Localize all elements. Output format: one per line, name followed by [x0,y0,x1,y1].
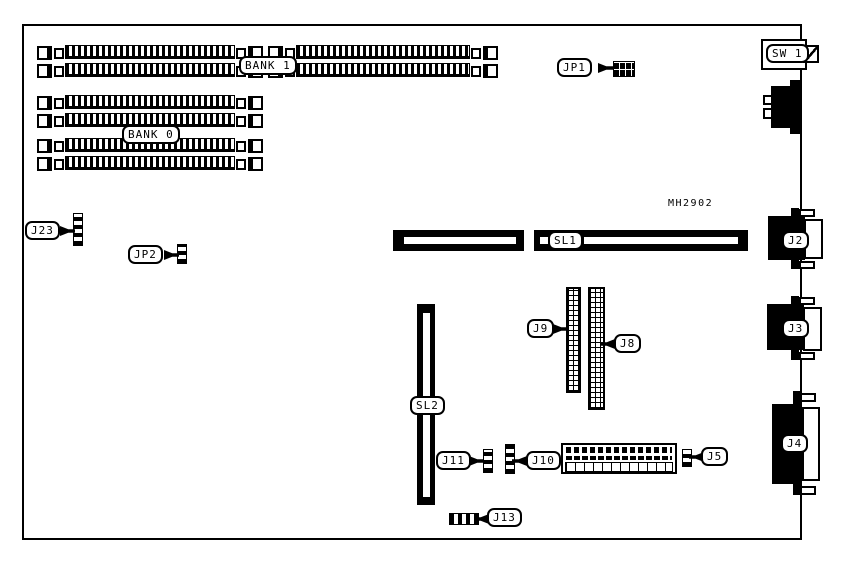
socket-pins [65,63,235,77]
j4-label: J4 [781,434,808,453]
j3-screw-post [791,350,799,360]
socket-end-right [248,139,263,153]
socket-end-left [37,114,52,128]
memory-socket [37,63,263,80]
j10-pin-header [505,444,515,474]
expansion-slot [393,230,524,251]
socket-pins [65,156,235,170]
j2-screw-tab [799,261,815,269]
socket-end-right [248,96,263,110]
memory-socket [37,95,263,112]
socket-bracket [54,98,64,109]
j11-label: J11 [436,451,471,470]
socket-pins [65,45,235,59]
j11-pin-header [483,449,493,473]
din-notch [763,95,773,105]
j3-screw-post [791,296,799,305]
j2-label: J2 [782,231,809,250]
socket-bracket [236,98,246,109]
socket-pins [296,45,470,59]
j2-screw-post [791,259,799,269]
j9-header-connector [566,287,581,393]
socket-end-left [37,157,52,171]
j13-label: J13 [487,508,522,527]
connector-dash-row [566,456,672,460]
connector-box-row [565,462,673,472]
slot-stripe [584,237,738,244]
socket-end-left [37,96,52,110]
socket-end-right [483,46,498,60]
slot-stripe [404,237,516,244]
socket-bracket [54,48,64,59]
socket-bracket [236,141,246,152]
jp1-label: JP1 [557,58,592,77]
socket-end-right [483,64,498,78]
j3-screw-tab [799,297,815,305]
socket-bracket [54,159,64,170]
sw1-label: SW 1 [766,44,809,63]
socket-bracket [54,141,64,152]
j4-screw-tab [800,393,816,402]
sl1-label: SL1 [548,231,583,250]
memory-socket [37,45,263,62]
j10-label: J10 [526,451,561,470]
j4-screw-post [793,391,800,404]
connector-pins-row [566,447,672,453]
memory-socket [268,63,498,80]
keyboard-din-connector [790,80,802,134]
sl2-label: SL2 [410,396,445,415]
socket-pins [65,95,235,109]
socket-bracket [471,66,481,77]
socket-end-left [37,139,52,153]
socket-bracket [236,159,246,170]
jp1-jumper-block [613,61,635,77]
part-number-text: MH2902 [668,198,713,209]
bank0-label: BANK 0 [122,125,180,144]
j4-screw-tab [800,486,816,495]
socket-bracket [54,116,64,127]
memory-socket [37,156,263,173]
j3-screw-tab [799,352,815,360]
j5-label: J5 [701,447,728,466]
socket-end-left [37,64,52,78]
j8-label: J8 [614,334,641,353]
j10-edge-connector [561,443,677,474]
socket-bracket [471,48,481,59]
j3-label: J3 [782,319,809,338]
j2-screw-tab [799,209,815,217]
din-notch [763,108,773,119]
memory-socket [268,45,498,62]
j23-label: J23 [25,221,60,240]
socket-bracket [236,116,246,127]
motherboard-diagram: BANK 1 BANK 0 JP1 J23 JP2 SW 1 MH2902 SL… [0,0,856,585]
socket-bracket [54,66,64,77]
jp2-label: JP2 [128,245,163,264]
socket-end-left [37,46,52,60]
j9-label: J9 [527,319,554,338]
bank1-label: BANK 1 [239,56,297,75]
socket-end-right [248,157,263,171]
socket-end-right [248,114,263,128]
j8-header-connector [588,287,605,410]
j4-screw-post [793,483,800,495]
socket-pins [296,63,470,77]
j2-screw-post [791,208,799,217]
